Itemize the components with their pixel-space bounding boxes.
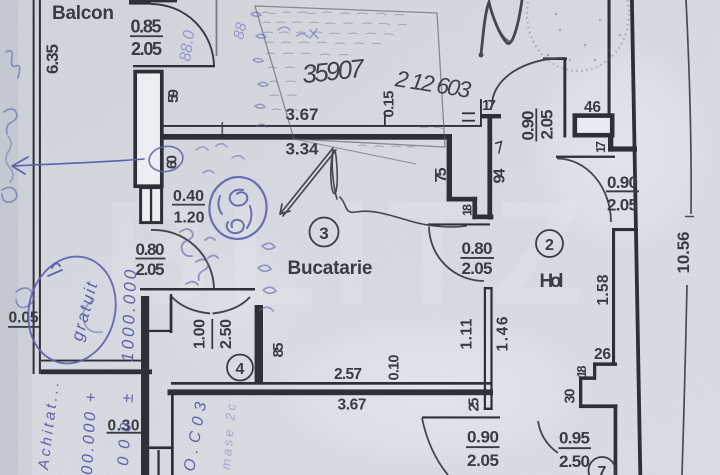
svg-text:1.58: 1.58 (595, 274, 612, 305)
svg-text:1.46: 1.46 (495, 316, 512, 351)
svg-text:2.05: 2.05 (538, 110, 557, 140)
svg-text:0.90: 0.90 (519, 111, 538, 141)
svg-text:Balcon: Balcon (52, 3, 114, 24)
svg-text:0.15: 0.15 (381, 91, 398, 118)
svg-text:2.05: 2.05 (131, 39, 162, 59)
svg-text:0.85: 0.85 (131, 17, 162, 37)
svg-text:1.00: 1.00 (192, 319, 209, 349)
svg-text:17: 17 (482, 97, 496, 114)
svg-text:0.40: 0.40 (173, 188, 204, 205)
svg-text:2.05: 2.05 (607, 196, 638, 215)
svg-text:3.67: 3.67 (286, 105, 319, 124)
svg-text:0.10: 0.10 (387, 355, 403, 381)
svg-text:17: 17 (594, 141, 608, 153)
svg-text:46: 46 (584, 99, 601, 116)
svg-text:Bucatarie: Bucatarie (288, 258, 373, 279)
svg-text:75: 75 (433, 167, 450, 182)
svg-text:0.80: 0.80 (462, 239, 493, 258)
svg-text:3.34: 3.34 (286, 140, 320, 159)
svg-text:59: 59 (165, 89, 182, 103)
svg-text:26: 26 (594, 346, 611, 363)
svg-text:18: 18 (575, 365, 589, 377)
svg-text:6.35: 6.35 (43, 44, 62, 74)
svg-text:30: 30 (563, 389, 579, 404)
svg-text:10.56: 10.56 (674, 232, 693, 274)
svg-text:94: 94 (492, 168, 509, 183)
svg-text:2.05: 2.05 (467, 451, 499, 470)
svg-text:1.11: 1.11 (459, 318, 476, 349)
svg-text:1.20: 1.20 (174, 210, 205, 227)
svg-text:25: 25 (467, 398, 483, 412)
svg-text:85: 85 (270, 343, 287, 358)
svg-text:0.90: 0.90 (467, 428, 499, 447)
svg-text:0.80: 0.80 (136, 240, 165, 259)
svg-text:2: 2 (545, 237, 554, 254)
svg-text:0.05: 0.05 (9, 310, 39, 327)
svg-text:7: 7 (598, 464, 607, 475)
svg-text:4: 4 (236, 361, 245, 378)
svg-text:2.50: 2.50 (559, 452, 590, 471)
svg-text:2.05: 2.05 (462, 259, 493, 278)
svg-text:18: 18 (461, 204, 475, 216)
svg-text:0.95: 0.95 (559, 429, 590, 448)
svg-text:3: 3 (319, 224, 328, 243)
svg-text:1000.000: 1000.000 (118, 269, 140, 362)
svg-text:0.90: 0.90 (607, 173, 638, 192)
svg-text:2.57: 2.57 (334, 366, 362, 383)
svg-text:2.50: 2.50 (218, 319, 235, 349)
svg-text:3.67: 3.67 (338, 397, 367, 414)
svg-text:Hol: Hol (540, 271, 564, 292)
